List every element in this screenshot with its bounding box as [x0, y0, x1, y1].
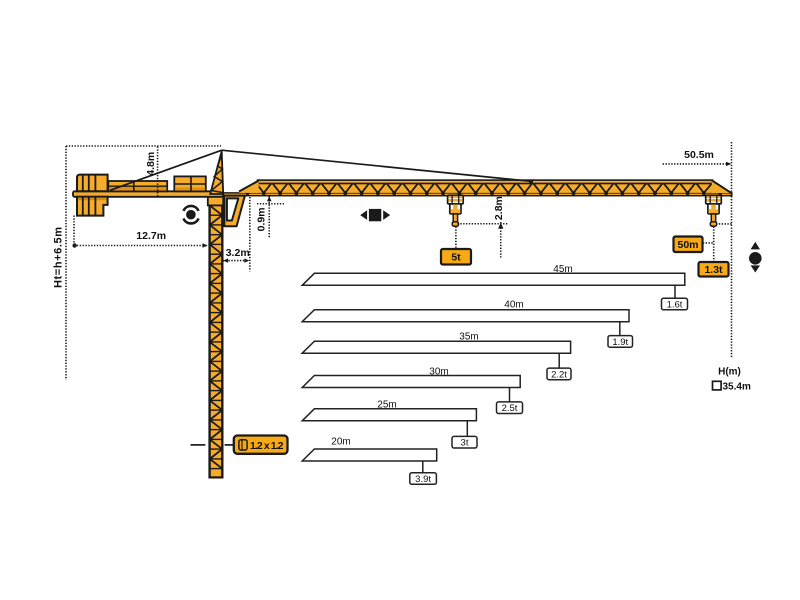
svg-text:2.8m: 2.8m	[493, 196, 505, 220]
svg-text:45m: 45m	[553, 264, 572, 275]
svg-text:4.8m: 4.8m	[145, 152, 157, 176]
svg-text:0.9m: 0.9m	[256, 207, 268, 231]
svg-text:35m: 35m	[459, 332, 478, 343]
svg-text:3t: 3t	[461, 438, 469, 449]
svg-text:1.6t: 1.6t	[667, 299, 683, 310]
svg-text:30m: 30m	[429, 367, 448, 378]
svg-text:2.2t: 2.2t	[551, 369, 567, 380]
svg-text:12.7m: 12.7m	[136, 230, 166, 242]
svg-text:5t: 5t	[451, 252, 461, 264]
svg-text:3.9t: 3.9t	[415, 474, 431, 485]
svg-text:H(m): H(m)	[718, 366, 741, 377]
svg-text:1.3t: 1.3t	[704, 264, 723, 276]
svg-text:40m: 40m	[504, 300, 523, 311]
svg-text:Ht=h+6.5m: Ht=h+6.5m	[53, 227, 65, 288]
svg-text:20m: 20m	[331, 436, 350, 447]
svg-text:35.4m: 35.4m	[723, 382, 751, 393]
svg-text:2.5t: 2.5t	[502, 403, 518, 414]
svg-text:50m: 50m	[677, 239, 698, 251]
svg-text:50.5m: 50.5m	[684, 149, 714, 161]
svg-text:3.2m: 3.2m	[226, 247, 250, 259]
svg-text:25m: 25m	[377, 400, 396, 411]
svg-text:1.9t: 1.9t	[612, 337, 628, 348]
svg-text:1.2 x 1.2: 1.2 x 1.2	[250, 440, 284, 452]
